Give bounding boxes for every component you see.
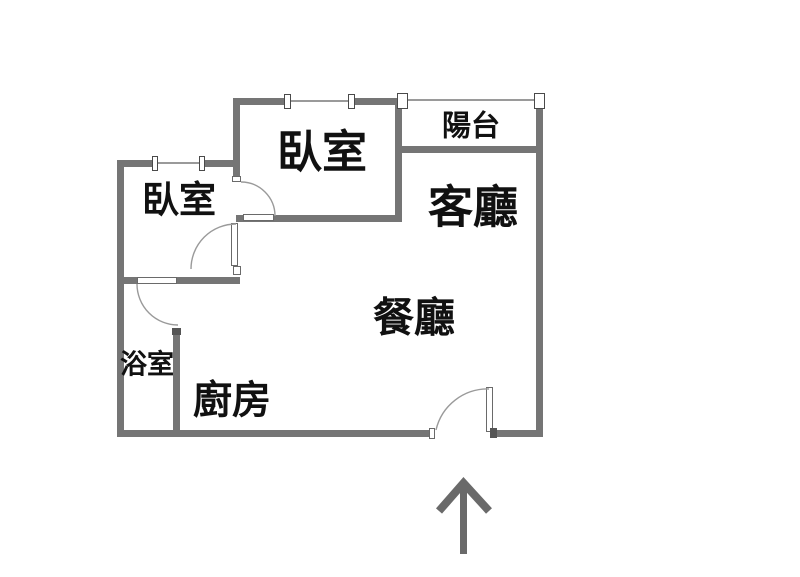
wall-outer-bottom-left [117,430,434,437]
room-label-balcony: 陽台 [442,113,500,142]
balcony-railing-line [408,99,534,101]
wall-outer-left [117,160,124,437]
wall-bedroom-main-left [233,98,240,181]
bedroom-second-window-line [158,162,199,164]
bedroom-second-window-post-left [152,156,158,171]
wall-bedroom-main-top-left [233,98,285,105]
entrance-door-sill-right [490,428,497,438]
entrance-door-sill-left [429,428,435,439]
balcony-post-left [397,93,408,109]
room-label-dining-room: 餐廳 [373,298,455,339]
bedroom-main-door-leaf [243,214,274,221]
room-label-bathroom: 浴室 [120,352,174,379]
wall-bathroom-top-right [177,277,240,284]
wall-bedroom-main-top-right [355,98,400,105]
room-label-kitchen: 廚房 [193,382,271,421]
entrance-door-leaf [486,387,493,432]
floor-plan: 臥室 臥室 陽台 客廳 餐廳 浴室 廚房 [0,0,800,577]
wall-outer-bottom-right [494,430,543,437]
wall-divider-end-cap [172,328,181,335]
bedroom-second-door-leaf [231,223,238,266]
wall-balcony-bottom [400,146,543,153]
room-label-living-room: 客廳 [428,185,518,230]
bedroom-main-window-post-left [284,94,291,109]
room-label-bedroom-main: 臥室 [277,130,367,175]
bedroom-second-door-hinge [233,266,241,275]
bedroom-second-window-post-right [199,156,205,171]
bedroom-main-window-post-right [348,94,355,109]
bathroom-door-arc-icon [137,284,178,325]
balcony-post-right [534,93,545,109]
bathroom-door-leaf [137,277,177,284]
bedroom-second-door-arc-icon [191,224,236,269]
room-label-bedroom-second: 臥室 [142,182,216,219]
doorway-end-cap [232,176,241,182]
wall-bedroom-second-top-right [205,160,240,167]
bedroom-main-window-line [291,100,348,102]
wall-outer-right [536,103,543,437]
entrance-door-arc-icon [436,389,489,430]
wall-bedroom-main-right [395,98,402,222]
entrance-arrow-icon [439,483,489,554]
wall-bathroom-top-left [117,277,137,284]
bedroom-main-door-arc-icon [241,182,275,216]
wall-bathroom-kitchen-divider [173,328,180,437]
